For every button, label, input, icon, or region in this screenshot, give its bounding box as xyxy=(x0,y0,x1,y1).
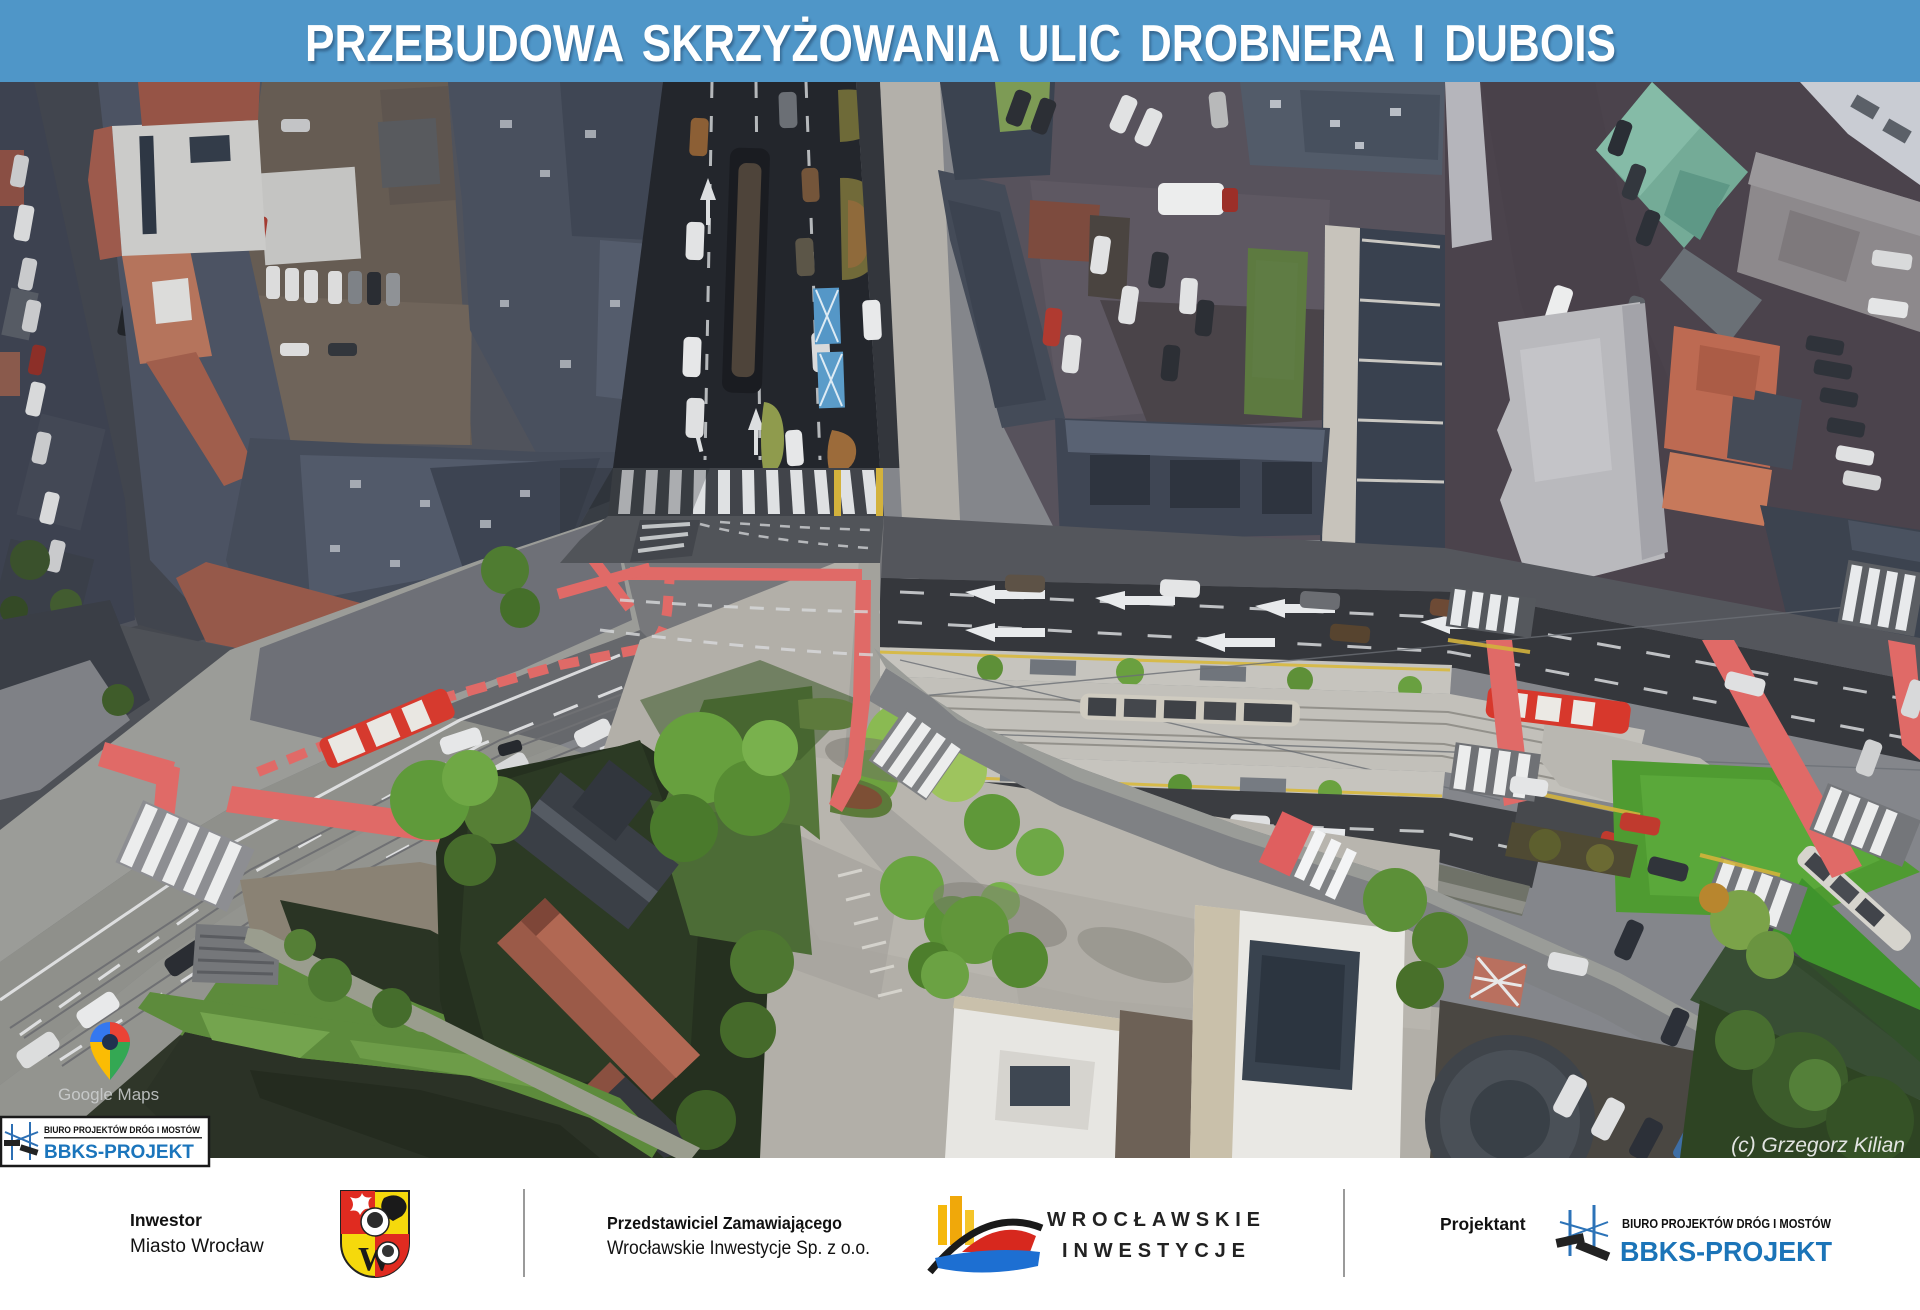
svg-text:Przedstawiciel Zamawiającego: Przedstawiciel Zamawiającego xyxy=(607,1213,842,1233)
svg-text:Wrocławskie Inwestycje Sp. z: Wrocławskie Inwestycje Sp. z o.o. xyxy=(607,1238,870,1259)
svg-text:PRZEBUDOWA SKRZYŻOWANIA ULIC D: PRZEBUDOWA SKRZYŻOWANIA ULIC DROBNERA I … xyxy=(305,15,1616,73)
svg-text:Google Maps: Google Maps xyxy=(58,1085,159,1104)
svg-text:BBKS-PROJEKT: BBKS-PROJEKT xyxy=(1620,1236,1832,1267)
svg-text:Miasto Wrocław: Miasto Wrocław xyxy=(130,1236,264,1257)
svg-text:(c) Grzegorz Kilian: (c) Grzegorz Kilian xyxy=(1731,1134,1905,1157)
svg-text:Inwestor: Inwestor xyxy=(130,1210,202,1230)
svg-text:BIURO PROJEKTÓW DRÓG I MOSTÓW: BIURO PROJEKTÓW DRÓG I MOSTÓW xyxy=(1622,1216,1831,1231)
svg-text:WROCŁAWSKIE: WROCŁAWSKIE xyxy=(1047,1209,1260,1231)
svg-text:Projektant: Projektant xyxy=(1440,1214,1526,1234)
svg-text:BBKS-PROJEKT: BBKS-PROJEKT xyxy=(44,1142,194,1163)
svg-text:BIURO PROJEKTÓW DRÓG I MOSTÓW: BIURO PROJEKTÓW DRÓG I MOSTÓW xyxy=(44,1124,200,1136)
